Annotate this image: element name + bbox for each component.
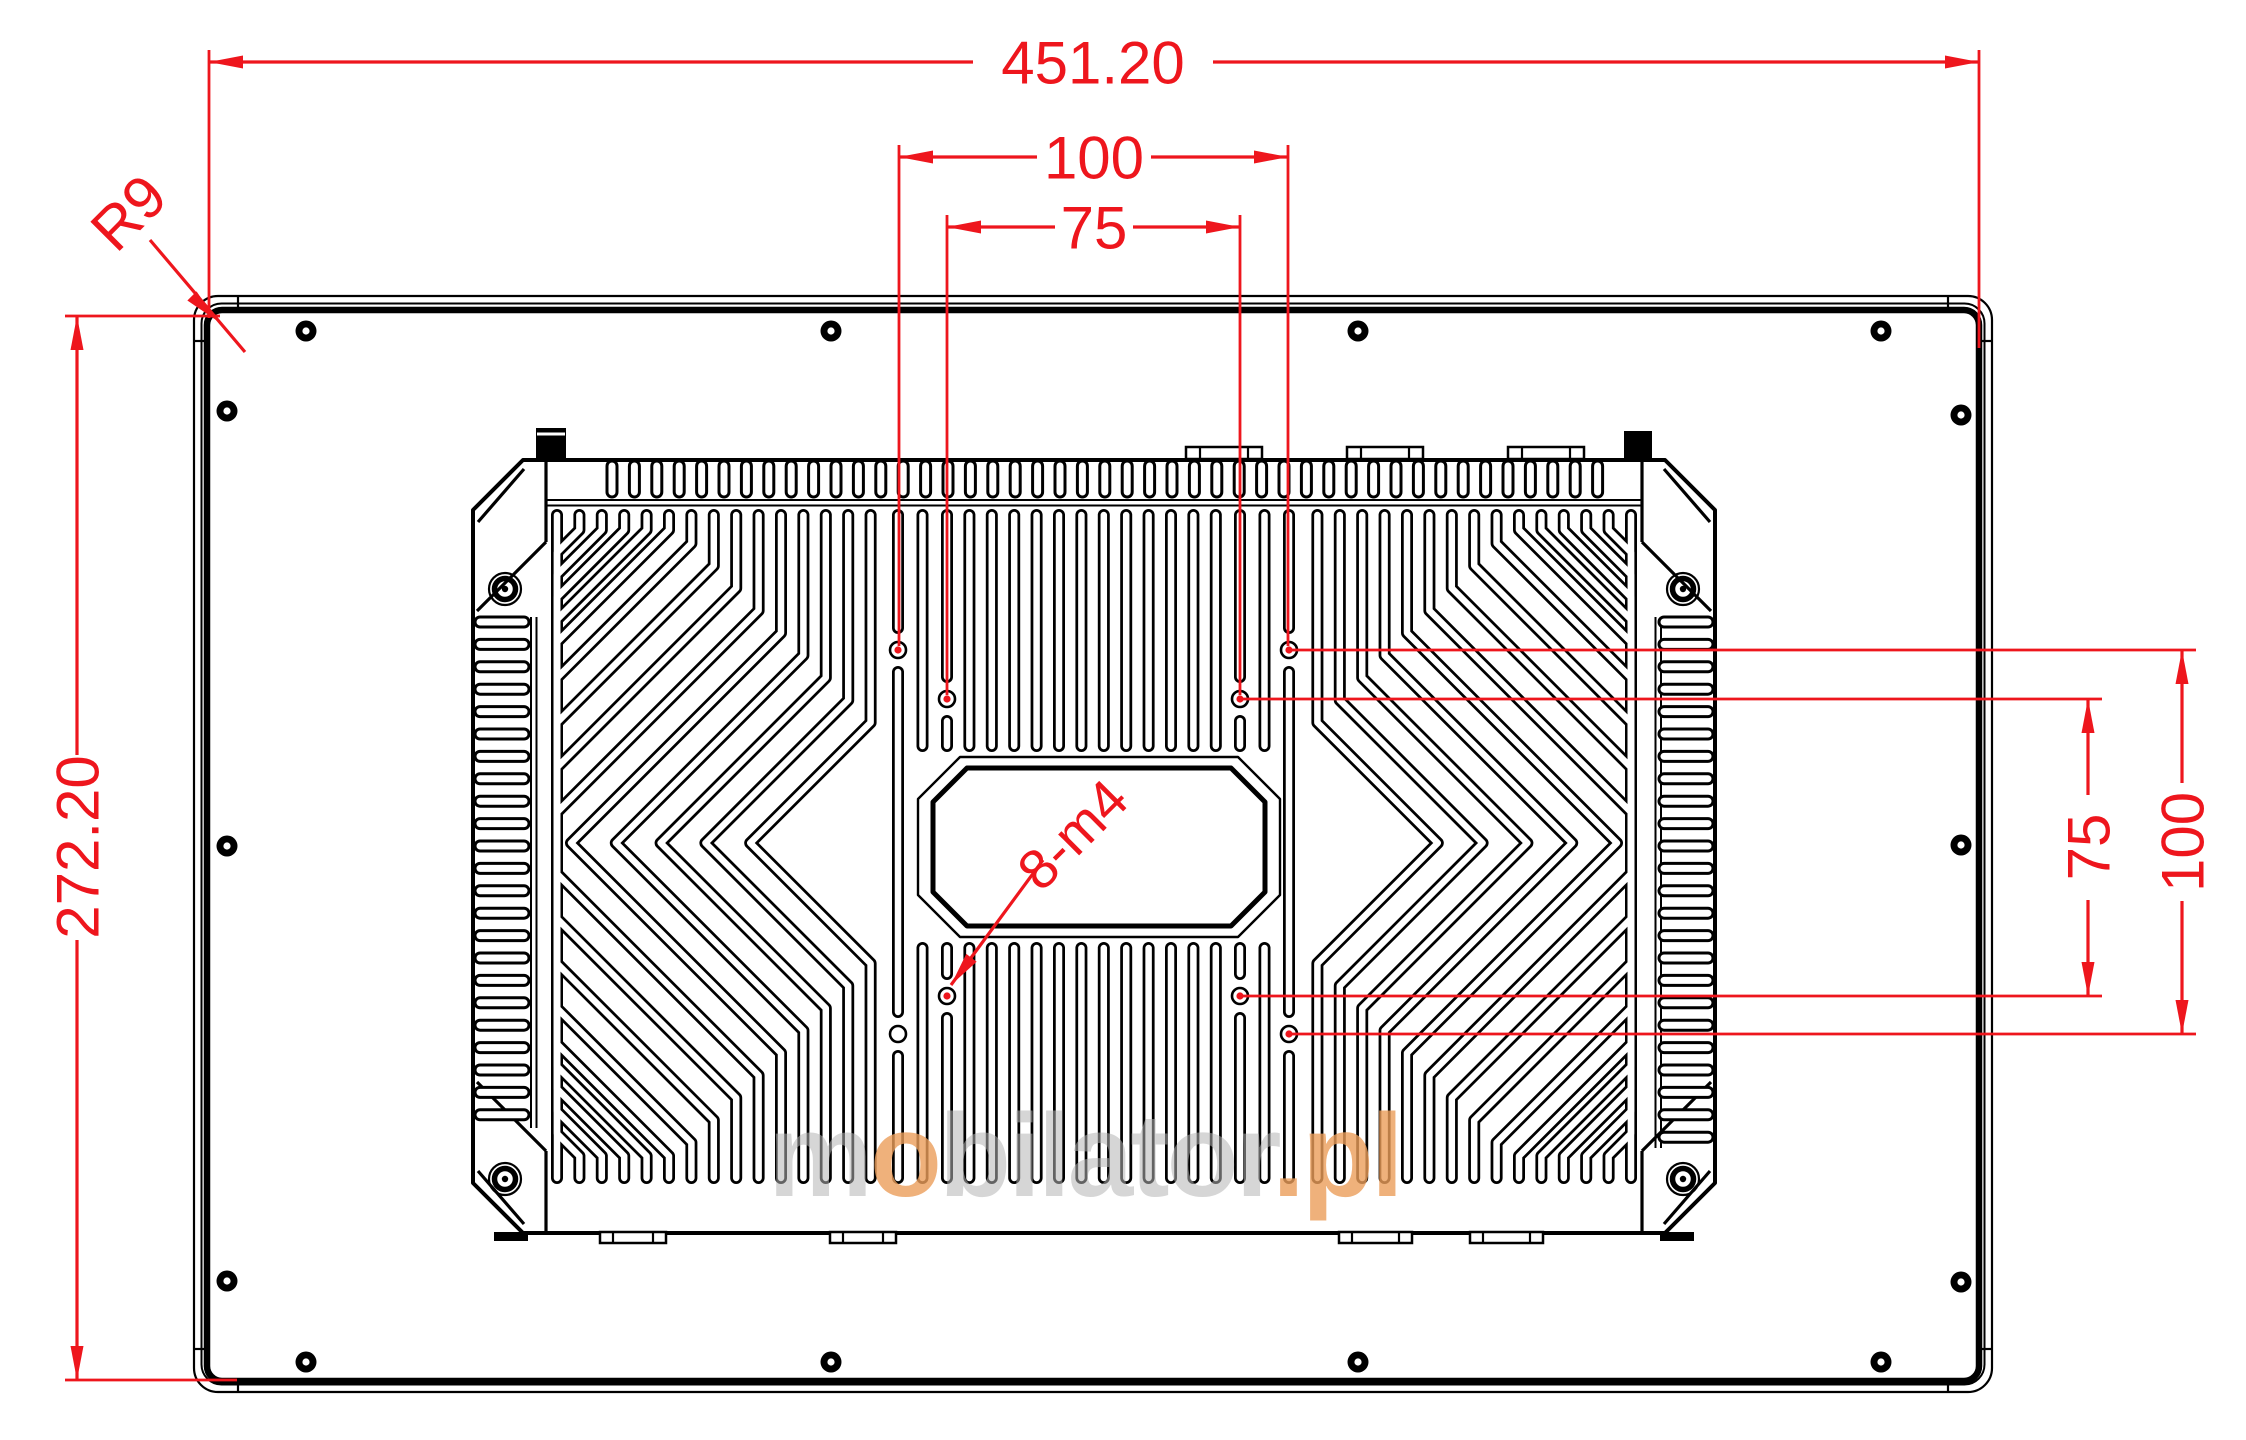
dim-label-vesa-v-75: 75 <box>2056 814 2123 881</box>
watermark-part: bilator <box>939 1090 1281 1222</box>
technical-drawing-canvas: mobilator.pl451.2010075272.2075100R98-m4 <box>0 0 2246 1440</box>
dim-label-vesa-h-100: 100 <box>1044 125 1144 192</box>
dim-label-overall-width: 451.20 <box>1001 30 1185 97</box>
drawing-svg: mobilator.pl451.2010075272.2075100R98-m4 <box>0 0 2246 1440</box>
top-connector-blocks <box>536 428 1652 460</box>
leader-corner-radius: R9 <box>78 162 245 352</box>
watermark-part: o <box>870 1090 939 1222</box>
top-edge-bumps <box>1186 447 1584 459</box>
watermark-text: mobilator.pl <box>768 1090 1401 1222</box>
leader-mounting-holes: 8-m4 <box>951 767 1140 985</box>
dim-label-vesa-v-100: 100 <box>2150 792 2217 892</box>
watermark-part: .pl <box>1272 1090 1401 1222</box>
watermark: mobilator.pl <box>768 1090 1401 1222</box>
dim-label-corner-radius: R9 <box>78 162 180 264</box>
dim-label-overall-height: 272.20 <box>45 755 112 939</box>
dim-label-vesa-h-75: 75 <box>1061 195 1128 262</box>
watermark-part: m <box>768 1090 870 1222</box>
